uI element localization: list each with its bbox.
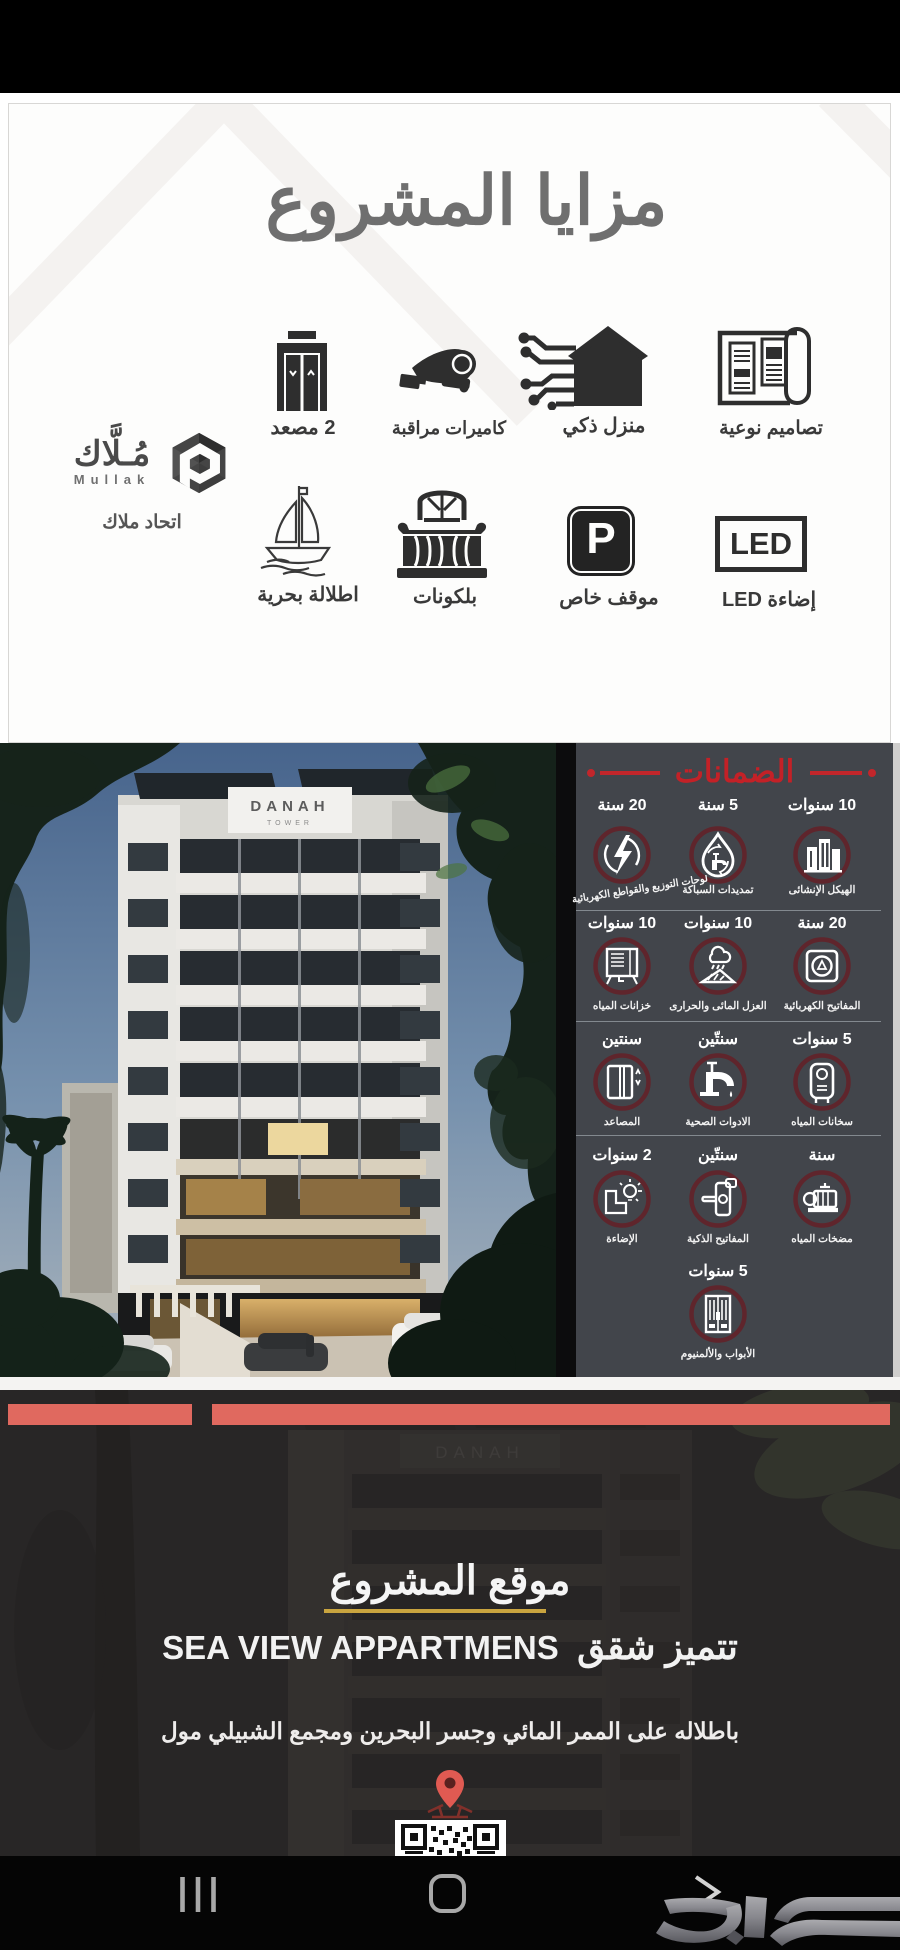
svg-text:TOWER: TOWER [267, 820, 313, 827]
svg-text:DANAH: DANAH [250, 798, 329, 815]
